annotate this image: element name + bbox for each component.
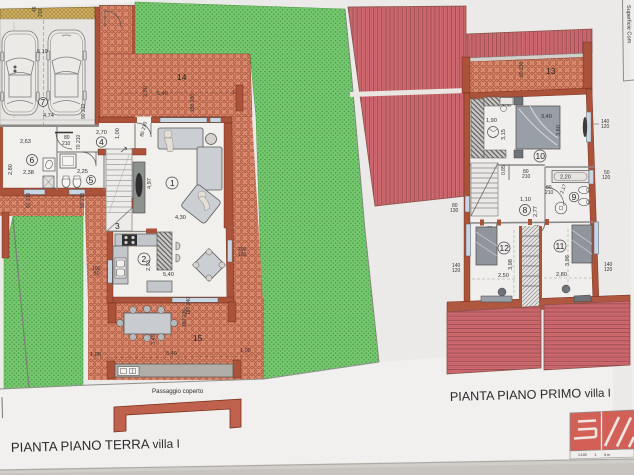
svg-text:210: 210 — [522, 174, 531, 180]
svg-text:180 230: 180 230 — [182, 309, 188, 327]
svg-text:50 210: 50 210 — [26, 192, 32, 208]
svg-text:0,85: 0,85 — [501, 165, 507, 175]
svg-text:1,00: 1,00 — [240, 348, 251, 354]
svg-text:2,90: 2,90 — [143, 86, 149, 97]
svg-text:2,77: 2,77 — [533, 206, 539, 217]
svg-text:1,00: 1,00 — [90, 352, 101, 358]
svg-text:210: 210 — [545, 190, 554, 196]
svg-text:120: 120 — [602, 175, 611, 181]
svg-text:1: 1 — [170, 178, 175, 188]
svg-text:5,40: 5,40 — [163, 272, 174, 278]
svg-text:4: 4 — [99, 137, 104, 147]
svg-text:130: 130 — [450, 208, 459, 214]
svg-text:11: 11 — [556, 241, 565, 251]
svg-text:50: 50 — [94, 271, 100, 277]
svg-text:6: 6 — [30, 155, 35, 165]
svg-text:5,19: 5,19 — [37, 49, 48, 55]
svg-text:8: 8 — [523, 205, 528, 215]
svg-text:Superficie Com: Superficie Com — [625, 5, 632, 44]
svg-text:14: 14 — [177, 72, 187, 82]
svg-text:3: 3 — [115, 221, 120, 231]
svg-text:15: 15 — [193, 333, 203, 343]
svg-text:70 210: 70 210 — [76, 134, 82, 150]
svg-text:2,20: 2,20 — [560, 175, 571, 181]
svg-text:4,97: 4,97 — [147, 178, 153, 189]
svg-text:3,45: 3,45 — [151, 334, 157, 345]
svg-text:1,10: 1,10 — [520, 197, 531, 203]
svg-text:80 230: 80 230 — [519, 61, 525, 77]
svg-text:120: 120 — [601, 124, 610, 130]
svg-text:1,00: 1,00 — [115, 128, 121, 139]
svg-text:3,15: 3,15 — [501, 129, 507, 140]
svg-text:2,63: 2,63 — [20, 139, 31, 145]
svg-text:5: 5 — [89, 175, 94, 185]
svg-text:2,50: 2,50 — [498, 273, 509, 279]
svg-text:210: 210 — [38, 8, 44, 17]
svg-text:4,74: 4,74 — [43, 113, 54, 119]
svg-text:Passaggio coperto: Passaggio coperto — [152, 388, 204, 395]
svg-text:2,70: 2,70 — [96, 130, 107, 136]
svg-text:2,93: 2,93 — [146, 260, 152, 271]
svg-text:3,40: 3,40 — [541, 114, 552, 120]
svg-text:12: 12 — [500, 243, 510, 253]
svg-text:180 230: 180 230 — [190, 94, 196, 112]
svg-text:50 210: 50 210 — [80, 192, 86, 208]
svg-text:90 210: 90 210 — [81, 103, 87, 119]
svg-text:2,80: 2,80 — [556, 272, 567, 278]
svg-text:4,30: 4,30 — [175, 215, 186, 221]
svg-text:9: 9 — [572, 192, 577, 202]
svg-text:10: 10 — [536, 151, 546, 161]
svg-text:1:100 1 5 m: 1:100 1 5 m — [578, 453, 610, 457]
svg-text:2,38: 2,38 — [23, 170, 34, 176]
svg-text:5,40: 5,40 — [166, 351, 177, 357]
svg-text:1,90: 1,90 — [486, 118, 497, 124]
svg-text:7: 7 — [41, 97, 46, 107]
svg-text:2,25: 2,25 — [77, 169, 88, 175]
svg-text:2,80: 2,80 — [8, 164, 14, 175]
svg-text:120: 120 — [238, 252, 247, 258]
svg-text:13: 13 — [546, 66, 556, 76]
svg-text:3,98: 3,98 — [508, 259, 514, 270]
svg-text:120: 120 — [604, 267, 613, 273]
svg-text:5,40: 5,40 — [157, 91, 168, 97]
svg-text:3,60: 3,60 — [556, 125, 562, 136]
svg-text:120: 120 — [452, 268, 461, 274]
